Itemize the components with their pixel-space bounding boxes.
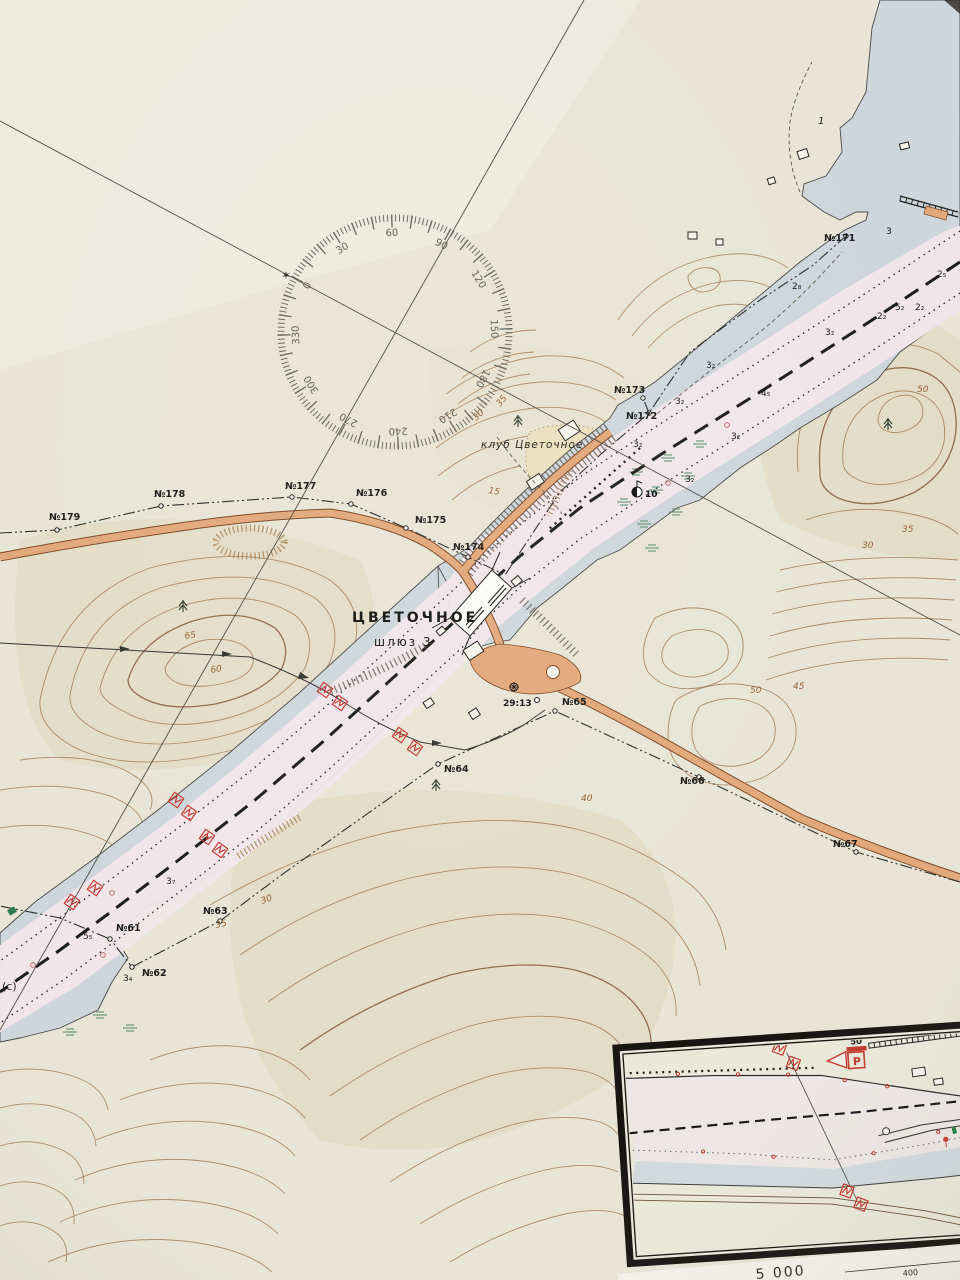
shore-marker-south: №63 <box>203 906 228 917</box>
depth-sounding: 3₂ <box>825 328 835 338</box>
shore-marker-south: №62 <box>142 968 167 979</box>
depth-sounding: 3₂ <box>685 475 695 485</box>
contour-elevation-label: 50 <box>750 686 762 696</box>
depth-sounding: 3₂ <box>731 432 741 442</box>
yard-circle <box>547 666 560 679</box>
depth-sounding: 3₂ <box>633 440 643 450</box>
depth-sounding: 5₅ <box>83 932 93 942</box>
contour-elevation-label: 60 <box>210 664 223 676</box>
contour-elevation-label: 45 <box>793 682 805 692</box>
depth-sounding: 3₂ <box>706 361 716 371</box>
inset-scale-distance: 400 <box>902 1268 918 1278</box>
compass-degree-label: 60 <box>385 228 398 239</box>
contour-elevation-label: 50 <box>917 385 929 395</box>
depth-sounding: 2₂ <box>915 303 925 313</box>
shore-marker-north: №172 <box>626 411 657 422</box>
contour-elevation-label: 40 <box>581 794 593 804</box>
parking-sign-label: P <box>852 1055 861 1069</box>
benchmark-label: 29:13 <box>503 699 532 709</box>
shore-marker-north: №173 <box>614 385 645 396</box>
map-canvas: 0306090120150180210240270300330 ✶ 10 29:… <box>0 0 960 1280</box>
club-label: клуб Цветочное <box>481 439 583 451</box>
shore-marker-south-point <box>553 709 557 713</box>
shore-marker-south: №64 <box>444 764 469 775</box>
shore-marker-north: №174 <box>453 542 485 553</box>
depth-sounding: 2₈ <box>792 282 802 292</box>
shore-marker-north: №179 <box>49 512 80 523</box>
shore-marker-south-point <box>130 965 134 969</box>
contour-elevation-label: 30 <box>862 541 874 551</box>
shore-marker-north: №178 <box>154 489 186 500</box>
depth-sounding: 2₅ <box>937 270 947 280</box>
shore-marker-north: №175 <box>415 515 446 526</box>
compass-degree-label: 150 <box>488 319 500 338</box>
shore-marker-south: №66 <box>680 776 705 787</box>
contour-elevation-label: 35 <box>902 525 914 535</box>
shore-marker-north-point <box>290 495 294 499</box>
shore-marker-north-point <box>349 502 353 506</box>
beacon-label: 10 <box>645 490 658 500</box>
shore-marker-south: №67 <box>833 839 858 850</box>
depth-sounding: 4₅ <box>761 389 771 399</box>
place-title: ЦВЕТОЧНОЕ <box>352 610 478 626</box>
contour-elevation-label: 65 <box>184 630 197 642</box>
shore-marker-north: №177 <box>285 481 316 492</box>
area-note: (с) <box>2 980 17 993</box>
inset-map: P 50 <box>616 1024 960 1263</box>
shore-marker-north-point <box>404 526 408 530</box>
shore-marker-south: №65 <box>562 697 587 708</box>
chart-sheet: 0306090120150180210240270300330 ✶ 10 29:… <box>0 0 960 1280</box>
shore-marker-north-point <box>55 528 59 532</box>
shore-marker-south-point <box>108 937 112 941</box>
spot-height-label: 1 <box>818 116 824 127</box>
depth-sounding: 5₂ <box>895 303 905 313</box>
contour-elevation-label: 15 <box>487 486 500 498</box>
depth-sounding: 3₂ <box>675 397 685 407</box>
shore-marker-south-point <box>854 850 858 854</box>
depth-sounding: 3 <box>886 227 892 237</box>
compass-degree-label: 240 <box>388 425 407 437</box>
shore-marker-south-point <box>436 762 440 766</box>
shore-marker-north: №176 <box>356 488 388 499</box>
place-subtitle: шлюз 3 <box>374 635 433 649</box>
shore-marker-north-point <box>641 396 645 400</box>
depth-sounding: 3₄ <box>123 974 133 984</box>
inset-scale-value: 5 000 <box>755 1263 806 1280</box>
shore-marker-north: №171 <box>824 233 855 244</box>
shore-marker-south: №61 <box>116 923 141 934</box>
depth-sounding: 2₂ <box>877 312 887 322</box>
ray-point-icon: ✶ <box>281 269 290 282</box>
shore-marker-north-point <box>466 555 470 559</box>
compass-degree-label: 330 <box>291 325 303 344</box>
depth-sounding: 3₇ <box>166 877 176 887</box>
shore-marker-north-point <box>159 504 163 508</box>
